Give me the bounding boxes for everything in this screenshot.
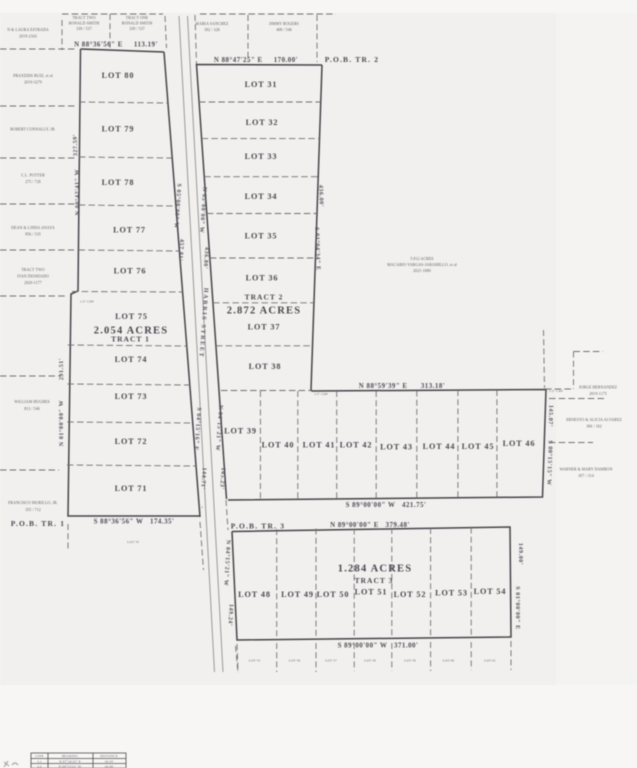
svg-text:LOT 31: LOT 31 bbox=[245, 80, 278, 89]
svg-text:LOT 34: LOT 34 bbox=[245, 192, 278, 201]
svg-text:L1: L1 bbox=[199, 505, 203, 509]
svg-text:LOT 53: LOT 53 bbox=[435, 589, 468, 598]
svg-text:N 87°16'25" E: N 87°16'25" E bbox=[59, 760, 81, 764]
svg-text:1/2" CRF: 1/2" CRF bbox=[80, 300, 94, 304]
svg-text:LOT 32: LOT 32 bbox=[246, 118, 279, 127]
svg-text:LOT 49: LOT 49 bbox=[281, 590, 314, 599]
svg-text:5.812 ACRES: 5.812 ACRES bbox=[410, 257, 433, 261]
svg-text:LOT 38: LOT 38 bbox=[249, 362, 282, 371]
svg-text:TRACT TWO: TRACT TWO bbox=[21, 268, 44, 272]
svg-text:LOT 78: LOT 78 bbox=[102, 178, 135, 187]
svg-text:392 / 326: 392 / 326 bbox=[204, 28, 220, 32]
svg-text:2019-2343: 2019-2343 bbox=[19, 35, 37, 39]
svg-text:LOT 45: LOT 45 bbox=[462, 442, 495, 451]
svg-text:LOT 59: LOT 59 bbox=[404, 659, 416, 663]
svg-text:LOT 41: LOT 41 bbox=[303, 441, 336, 450]
svg-text:LOT 44: LOT 44 bbox=[423, 442, 456, 451]
svg-text:N & LAURA ESTRADA: N & LAURA ESTRADA bbox=[7, 28, 49, 32]
svg-text:LOT 76: LOT 76 bbox=[114, 267, 147, 276]
svg-text:149.00': 149.00' bbox=[517, 543, 523, 565]
svg-text:LOT 70: LOT 70 bbox=[127, 540, 139, 544]
svg-text:TRACT 2: TRACT 2 bbox=[245, 293, 284, 302]
svg-text:LOT 71: LOT 71 bbox=[115, 484, 148, 493]
svg-text:LOT 56: LOT 56 bbox=[289, 659, 301, 663]
svg-text:408 / 546: 408 / 546 bbox=[276, 28, 292, 32]
svg-text:291.51': 291.51' bbox=[59, 358, 65, 380]
svg-text:1/2" CRF: 1/2" CRF bbox=[549, 389, 563, 393]
svg-text:339 / 537: 339 / 537 bbox=[129, 27, 145, 31]
svg-text:LOT 37: LOT 37 bbox=[248, 323, 281, 332]
svg-text:LOT 50: LOT 50 bbox=[317, 590, 350, 599]
svg-text:WARNER & MARY DAMRON: WARNER & MARY DAMRON bbox=[560, 468, 613, 472]
svg-text:DEAN & LINDA ANAYA: DEAN & LINDA ANAYA bbox=[11, 226, 55, 230]
svg-text:LOT 61: LOT 61 bbox=[484, 659, 496, 663]
svg-text:C.L. POTTER: C.L. POTTER bbox=[21, 174, 45, 178]
svg-text:N 88°36'56" E 113.19': N 88°36'56" E 113.19' bbox=[74, 42, 158, 49]
svg-text:JORGE HERNANDEZ: JORGE HERNANDEZ bbox=[579, 386, 618, 390]
svg-text:LOT 46: LOT 46 bbox=[503, 439, 536, 448]
svg-text:16.56': 16.56' bbox=[104, 765, 113, 768]
svg-text:N 88°47'25" E 170.00': N 88°47'25" E 170.00' bbox=[214, 57, 298, 64]
svg-text:2021-1080: 2021-1080 bbox=[413, 269, 431, 273]
svg-text:LOT 58: LOT 58 bbox=[364, 659, 376, 663]
svg-text:MARIA SANCHEZ: MARIA SANCHEZ bbox=[196, 22, 229, 26]
svg-text:LOT 51: LOT 51 bbox=[355, 588, 388, 597]
svg-text:813 / 546: 813 / 546 bbox=[24, 407, 40, 411]
svg-text:ERNESTO & ALICIA ALVAREZ: ERNESTO & ALICIA ALVAREZ bbox=[566, 418, 622, 422]
svg-text:436.00': 436.00' bbox=[317, 185, 324, 208]
svg-text:LOT 60: LOT 60 bbox=[443, 659, 455, 663]
svg-text:856 / 535: 856 / 535 bbox=[25, 233, 41, 237]
svg-text:2019-3279: 2019-3279 bbox=[24, 81, 42, 85]
svg-text:2019-1175: 2019-1175 bbox=[589, 392, 607, 396]
svg-text:1.284 ACRES: 1.284 ACRES bbox=[338, 564, 412, 575]
svg-text:LOT 39: LOT 39 bbox=[224, 427, 257, 436]
svg-text:LOT 75: LOT 75 bbox=[115, 312, 148, 321]
svg-text:LOT 80: LOT 80 bbox=[102, 71, 135, 80]
svg-text:457 / 314: 457 / 314 bbox=[578, 474, 594, 478]
svg-text:339 / 537: 339 / 537 bbox=[76, 27, 92, 31]
svg-text:P.O.B. TR. 3: P.O.B. TR. 3 bbox=[231, 522, 285, 531]
svg-text:DISTANCE: DISTANCE bbox=[100, 754, 118, 758]
svg-text:N 88°59'39" E 313.18': N 88°59'39" E 313.18' bbox=[359, 383, 445, 390]
svg-text:275 / 726: 275 / 726 bbox=[25, 180, 41, 184]
svg-text:L1: L1 bbox=[37, 760, 41, 764]
svg-text:1/2" CRF: 1/2" CRF bbox=[314, 392, 328, 396]
svg-text:BEARING: BEARING bbox=[62, 754, 79, 758]
svg-text:JIMMY ROGERS: JIMMY ROGERS bbox=[269, 22, 299, 26]
svg-text:WILLIAM HUGHES: WILLIAM HUGHES bbox=[14, 400, 49, 404]
svg-text:S 89°00'00" W 371.00': S 89°00'00" W 371.00' bbox=[338, 643, 419, 650]
svg-text:LOT 54: LOT 54 bbox=[474, 587, 507, 596]
svg-text:N 01°00'00" W: N 01°00'00" W bbox=[58, 400, 65, 446]
svg-text:TRACT TWO: TRACT TWO bbox=[72, 16, 95, 20]
svg-text:149.24': 149.24' bbox=[226, 604, 233, 627]
svg-text:LOT 36: LOT 36 bbox=[246, 274, 279, 283]
svg-text:LOT 73: LOT 73 bbox=[115, 392, 148, 401]
svg-text:145.07': 145.07' bbox=[547, 405, 554, 428]
svg-text:TRACT 1: TRACT 1 bbox=[111, 335, 150, 344]
svg-text:LOT 35: LOT 35 bbox=[245, 232, 278, 241]
svg-text:LOT 43: LOT 43 bbox=[380, 443, 413, 452]
svg-text:LINE: LINE bbox=[35, 754, 43, 758]
svg-text:LOT 57: LOT 57 bbox=[325, 659, 337, 663]
svg-text:S 88°36'56" W 174.35': S 88°36'56" W 174.35' bbox=[94, 519, 175, 526]
svg-text:366 / 162: 366 / 162 bbox=[586, 425, 602, 429]
svg-text:N 89°00'00" E 379.48': N 89°00'00" E 379.48' bbox=[330, 522, 410, 529]
svg-text:LOT 40: LOT 40 bbox=[262, 441, 295, 450]
svg-text:LOT 77: LOT 77 bbox=[113, 226, 146, 235]
svg-text:LOT 74: LOT 74 bbox=[115, 355, 148, 364]
svg-text:TRACT 3: TRACT 3 bbox=[355, 576, 394, 585]
svg-text:LOT 79: LOT 79 bbox=[102, 125, 135, 134]
svg-text:LOT 33: LOT 33 bbox=[245, 152, 278, 161]
svg-text:N 00°42'41" W: N 00°42'41" W bbox=[74, 169, 82, 216]
svg-text:L2: L2 bbox=[37, 765, 41, 768]
svg-text:S 01°00'00" E: S 01°00'00" E bbox=[514, 586, 521, 630]
svg-text:N 04°15'21" W: N 04°15'21" W bbox=[59, 765, 82, 768]
svg-text:RONALD SMITH: RONALD SMITH bbox=[122, 22, 153, 26]
svg-text:18.33': 18.33' bbox=[104, 760, 113, 764]
svg-text:327.59': 327.59' bbox=[73, 134, 79, 156]
svg-text:P.O.B. TR. 2: P.O.B. TR. 2 bbox=[325, 55, 379, 64]
svg-text:P.O.B. TR. 1: P.O.B. TR. 1 bbox=[11, 519, 65, 528]
svg-text:2.872 ACRES: 2.872 ACRES bbox=[227, 306, 301, 317]
svg-text:RONALD SMITH: RONALD SMITH bbox=[69, 22, 100, 26]
svg-text:TRACT ONE: TRACT ONE bbox=[126, 16, 149, 20]
svg-text:LOT 42: LOT 42 bbox=[340, 441, 373, 450]
svg-text:2020-1177: 2020-1177 bbox=[24, 281, 42, 285]
svg-text:LOT 72: LOT 72 bbox=[115, 437, 148, 446]
svg-text:LOT 55: LOT 55 bbox=[249, 659, 261, 663]
svg-text:S 89°00'00" W 421.75': S 89°00'00" W 421.75' bbox=[346, 502, 427, 509]
svg-text:355 / 712: 355 / 712 bbox=[25, 508, 41, 512]
svg-text:IVAN DIOSDADO: IVAN DIOSDADO bbox=[17, 275, 49, 279]
svg-text:LOT 52: LOT 52 bbox=[394, 590, 427, 599]
svg-text:LOT 48: LOT 48 bbox=[238, 590, 271, 599]
